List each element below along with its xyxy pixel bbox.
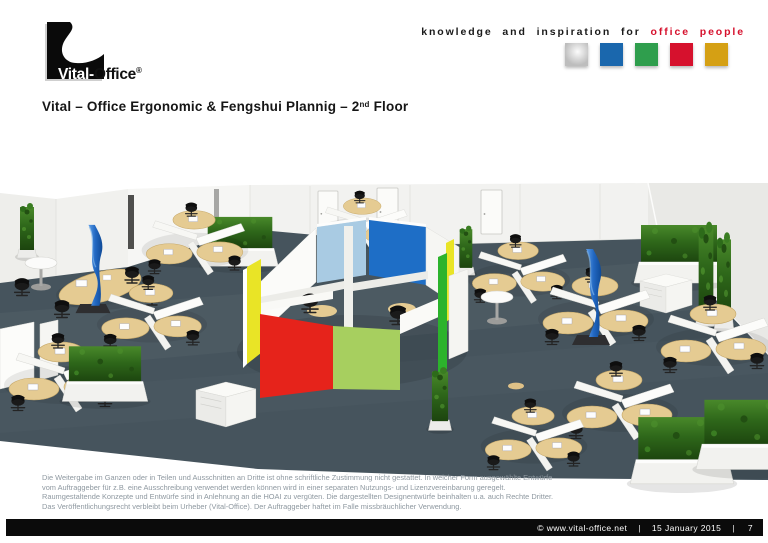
presentation-slide: Vital-Office® knowledge and inspiration … (0, 0, 768, 543)
registered-mark: ® (136, 66, 142, 75)
brand-color-squares (565, 43, 728, 66)
cube-panel-green (333, 326, 400, 390)
office-chair (125, 267, 139, 284)
storage-cabinet (196, 382, 256, 427)
door (481, 190, 502, 234)
title-superscript: nd (359, 100, 369, 109)
logo-text-vital: Vital- (58, 66, 94, 83)
stool (508, 383, 524, 390)
footer-copyright-url: © www.vital-office.net (537, 523, 627, 533)
brand-square-blue (600, 43, 623, 66)
brand-square-green (635, 43, 658, 66)
brand-square-silver (565, 43, 588, 66)
tagline-black: knowledge and inspiration for (421, 26, 640, 38)
footer-date: 15 January 2015 (652, 523, 721, 533)
wall-opening (128, 195, 134, 249)
cube-panel-red (260, 314, 333, 398)
office-floorplan-rendering (0, 183, 768, 493)
cube-panel-lightblue (317, 220, 366, 283)
brand-square-gold (705, 43, 728, 66)
tagline: knowledge and inspiration for office peo… (421, 26, 745, 38)
page-number: 7 (748, 523, 753, 533)
office-chair (55, 300, 70, 317)
disclaimer-text: Die Weitergabe im Ganzen oder in Teilen … (42, 473, 558, 511)
cube-panel-yellow (247, 259, 261, 364)
brand-square-red (670, 43, 693, 66)
plant-wall (59, 346, 150, 409)
footer-separator: | (638, 523, 641, 533)
tagline-red: office people (651, 26, 745, 38)
logo-wordmark: Vital-Office® (58, 66, 142, 84)
vital-office-logo: Vital-Office® (47, 22, 247, 92)
logo-text-office: Office (94, 66, 136, 83)
slide-title: Vital – Office Ergonomic & Fengshui Plan… (42, 99, 408, 114)
footer-bar: © www.vital-office.net | 15 January 2015… (6, 519, 763, 536)
footer-separator: | (732, 523, 735, 533)
office-chair (15, 278, 30, 295)
